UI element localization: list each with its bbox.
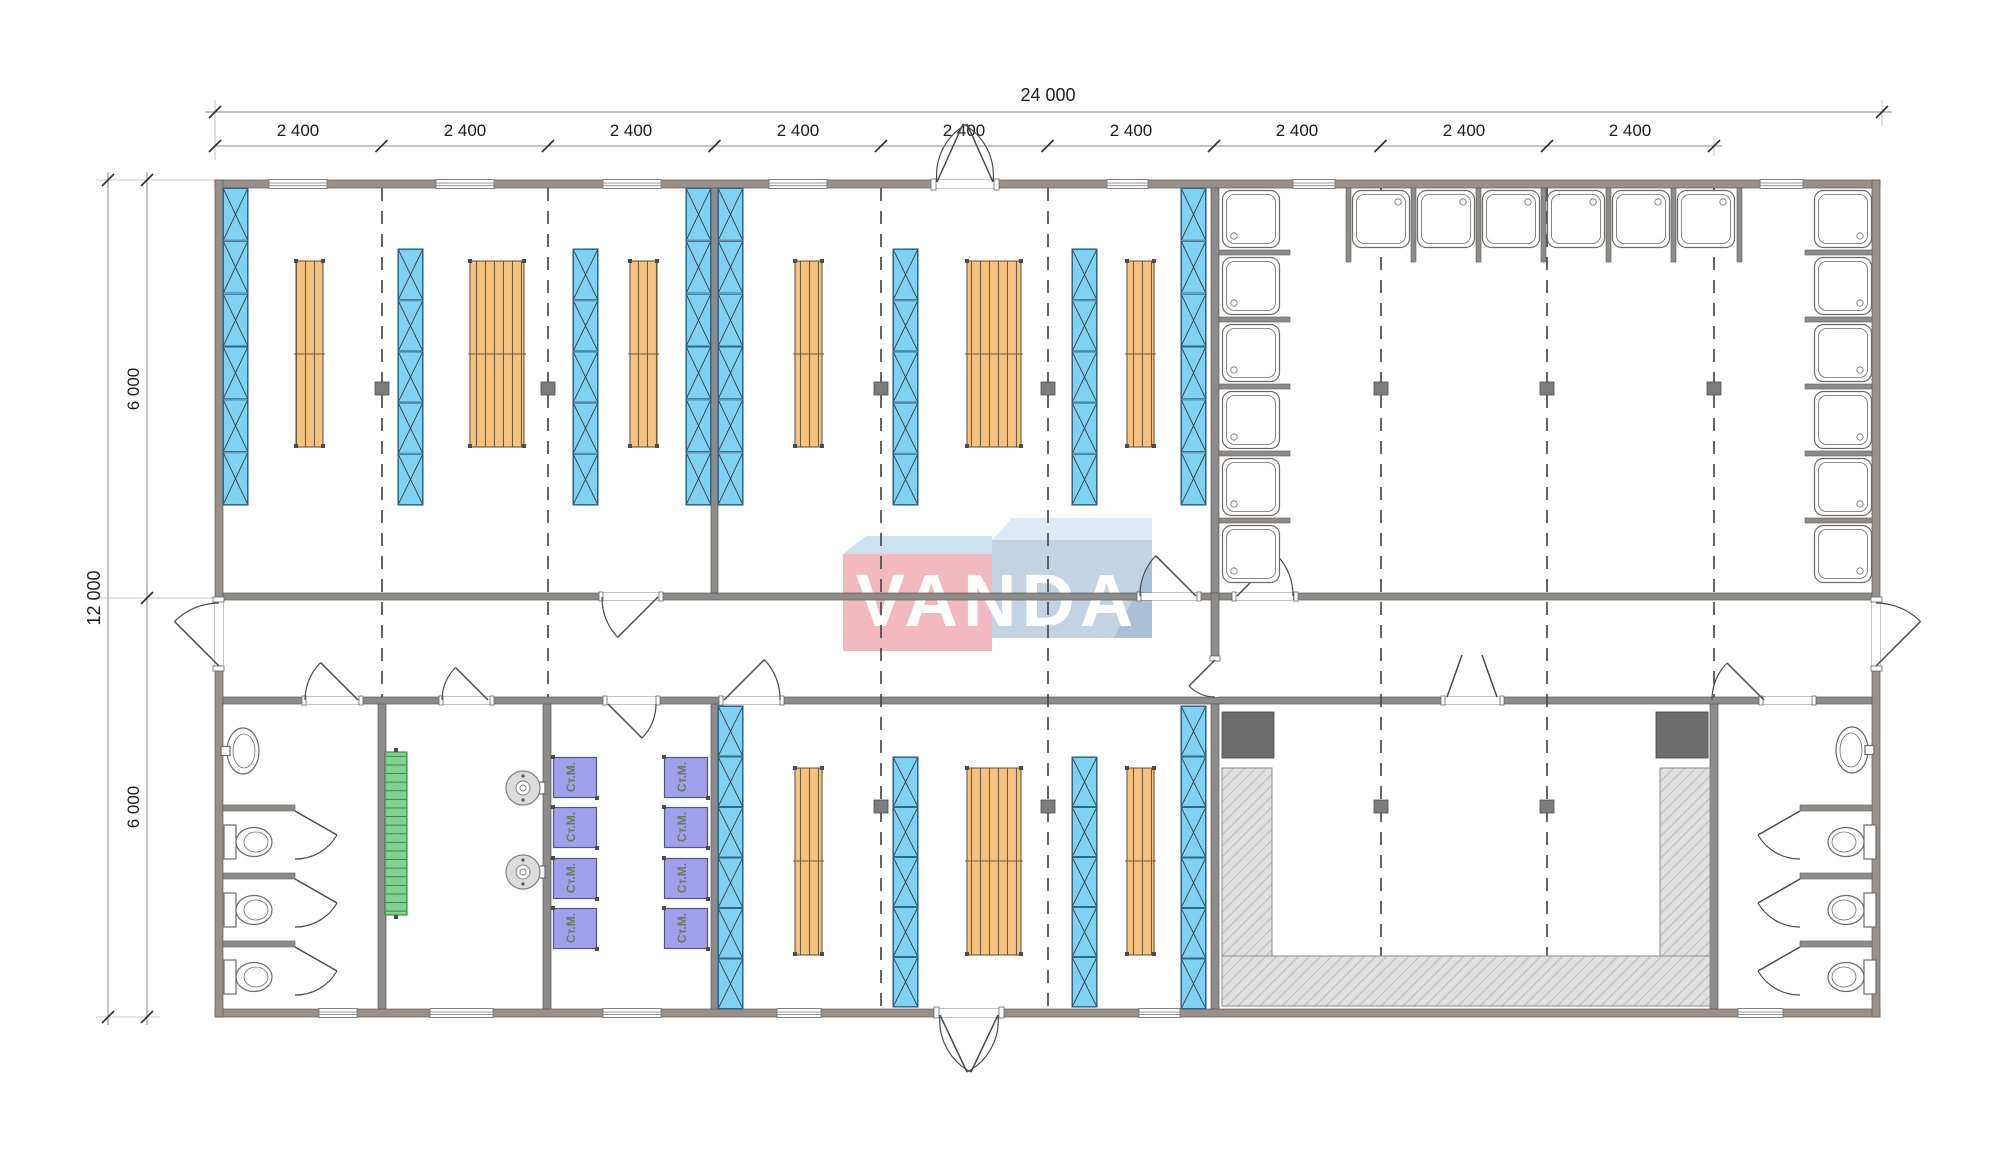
bunk-bed-panel	[1181, 188, 1206, 505]
shower-divider	[1606, 188, 1611, 262]
door-wc-left	[302, 663, 363, 705]
washing-machine-label: Ст.М.	[564, 762, 578, 792]
shower-tray	[1548, 191, 1605, 248]
window	[603, 1009, 661, 1018]
shower-tray	[1223, 392, 1280, 449]
shower-divider	[1805, 317, 1872, 322]
window	[436, 180, 494, 189]
washing-machine-label: Ст.М.	[564, 913, 578, 943]
locker-panel	[965, 259, 1023, 448]
shower-divider	[1346, 188, 1351, 262]
shower-divider	[1219, 317, 1290, 322]
shower-tray	[1223, 258, 1280, 315]
drying-room	[1222, 712, 1710, 1006]
bench	[385, 748, 407, 919]
heater-unit	[1222, 712, 1274, 758]
locker-panel	[1125, 259, 1156, 448]
shower-tray	[1815, 459, 1872, 516]
wall-dorm1-dorm2	[711, 188, 718, 593]
door-changing-room	[439, 668, 494, 706]
wc-left-partition	[223, 805, 295, 811]
heater-unit	[1656, 712, 1708, 758]
wc-left-partition	[223, 941, 295, 947]
window	[1760, 180, 1803, 189]
shower-divider	[1671, 188, 1676, 262]
locker-panel	[294, 259, 325, 448]
shower-tray	[1613, 191, 1670, 248]
window	[1107, 180, 1148, 189]
wall-changing-laundry	[543, 704, 551, 1009]
wc-stall-doors-left	[295, 811, 337, 995]
locker-panel	[1125, 766, 1156, 956]
washing-machine-label: Ст.М.	[564, 863, 578, 893]
shower-tray	[1815, 325, 1872, 382]
exterior-door-east	[1871, 597, 1921, 671]
wc-right-partition	[1800, 805, 1872, 811]
washing-machine-label: Ст.М.	[675, 913, 689, 943]
dim-module-7: 2 400	[1276, 121, 1319, 140]
dim-half-height-bottom: 6 000	[124, 786, 143, 829]
corridor-divider-wall	[1211, 593, 1219, 660]
locker-panel	[793, 766, 824, 956]
bunk-bed-panel	[893, 249, 918, 505]
drying-bench	[1660, 768, 1710, 956]
dim-module-3: 2 400	[610, 121, 653, 140]
window	[319, 1009, 357, 1018]
water-heater	[506, 855, 540, 889]
window	[430, 1009, 493, 1018]
locker-panel	[793, 259, 824, 448]
window	[1139, 1009, 1180, 1018]
locker-panel	[965, 766, 1023, 956]
window	[603, 180, 661, 189]
sink	[1836, 727, 1874, 773]
toilet	[224, 825, 272, 859]
window	[1293, 180, 1335, 189]
wall-dryroom-wc2	[1710, 704, 1718, 1009]
washing-machine-label: Ст.М.	[675, 762, 689, 792]
shower-divider	[1737, 188, 1742, 262]
washing-machine-label: Ст.М.	[675, 812, 689, 842]
shower-divider	[1541, 188, 1546, 262]
door-dorm1	[599, 592, 663, 637]
toilet	[224, 960, 272, 994]
shower-tray	[1418, 191, 1475, 248]
dim-module-4: 2 400	[777, 121, 820, 140]
shower-divider	[1805, 250, 1872, 255]
drying-bench	[1222, 956, 1710, 1006]
washing-machine-label: Ст.М.	[675, 863, 689, 893]
toilet	[1828, 893, 1876, 927]
shower-divider	[1476, 188, 1481, 262]
door-laundry	[603, 696, 660, 738]
shower-tray	[1815, 392, 1872, 449]
corridor-wall-north	[223, 593, 1872, 600]
wc-stall-doors-right	[1758, 811, 1800, 995]
door-dorm3	[719, 660, 784, 705]
shower-tray	[1353, 191, 1410, 248]
drying-bench	[1222, 768, 1272, 956]
dim-module-8: 2 400	[1443, 121, 1486, 140]
bunk-bed-panel	[718, 188, 743, 505]
bunk-bed-panel	[1072, 757, 1097, 1007]
window	[769, 180, 827, 189]
shower-divider	[1805, 451, 1872, 456]
shower-tray	[1815, 258, 1872, 315]
water-heater	[506, 771, 540, 805]
logo-right-top-face	[992, 518, 1152, 540]
washing-machine-label: Ст.М.	[564, 812, 578, 842]
shower-divider	[1219, 250, 1290, 255]
bunk-bed-panel	[1072, 249, 1097, 505]
dim-module-6: 2 400	[1110, 121, 1153, 140]
shower-tray	[1815, 191, 1872, 248]
shower-tray	[1223, 191, 1280, 248]
floor-plan-drawing: VANDA 24 000 2 400 2 400 2 400 2 400 2 4…	[0, 0, 2000, 1175]
dim-total-height: 12 000	[84, 570, 104, 625]
toilet	[1828, 825, 1876, 859]
logo-left-top-face	[843, 536, 992, 554]
shower-divider	[1411, 188, 1416, 262]
bunk-bed-panel	[718, 706, 743, 1009]
logo-text: VANDA	[856, 559, 1139, 642]
bunk-bed-panel	[398, 249, 423, 505]
exterior-door-west	[175, 597, 225, 671]
dim-module-1: 2 400	[277, 121, 320, 140]
bunk-bed-panel	[686, 188, 711, 505]
shower-tray	[1678, 191, 1735, 248]
shower-tray	[1815, 526, 1872, 583]
shower-divider	[1219, 384, 1290, 389]
shower-divider	[1219, 451, 1290, 456]
window	[1738, 1009, 1783, 1018]
bunk-bed-panel	[1181, 706, 1206, 1009]
window	[777, 1009, 821, 1018]
shower-divider	[1805, 384, 1872, 389]
vanda-logo: VANDA	[843, 518, 1152, 651]
toilet	[1828, 960, 1876, 994]
shower-tray	[1223, 459, 1280, 516]
shower-tray	[1223, 325, 1280, 382]
exterior-door-south	[934, 1007, 1004, 1072]
bunk-bed-panel	[573, 249, 598, 505]
bunk-bed-panel	[223, 188, 248, 505]
shower-tray	[1483, 191, 1540, 248]
wall-dorm3-dryroom	[1211, 704, 1219, 1009]
wc-right-partition	[1800, 873, 1872, 879]
shower-divider	[1219, 518, 1290, 523]
wall-laundry-dorm3	[711, 704, 718, 1009]
locker-panel	[468, 259, 526, 448]
shower-tray	[1223, 526, 1280, 583]
wc-right-partition	[1800, 941, 1872, 947]
sink	[221, 728, 259, 774]
dim-half-height-top: 6 000	[124, 368, 143, 411]
floor-plan-page: VANDA 24 000 2 400 2 400 2 400 2 400 2 4…	[0, 0, 2000, 1175]
wall-dorm2-showers	[1211, 188, 1219, 593]
toilet	[224, 893, 272, 927]
dim-module-9: 2 400	[1609, 121, 1652, 140]
dim-total-width: 24 000	[1020, 85, 1075, 105]
dim-module-2: 2 400	[444, 121, 487, 140]
locker-panel	[628, 259, 659, 448]
wc-left-partition	[223, 873, 295, 879]
door-dryroom-double	[1441, 655, 1504, 705]
bunk-bed-panel	[893, 757, 918, 1007]
shower-divider	[1805, 518, 1872, 523]
window	[269, 180, 327, 189]
door-corridor-divider	[1189, 656, 1220, 697]
